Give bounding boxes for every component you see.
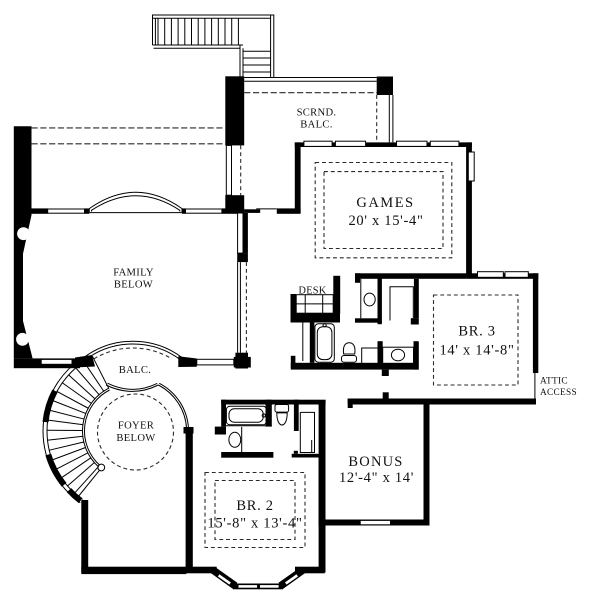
svg-text:GAMES: GAMES: [356, 195, 414, 211]
svg-text:ATTIC: ATTIC: [540, 376, 568, 386]
svg-text:BR. 2: BR. 2: [236, 498, 273, 514]
svg-text:20' x 15'-4": 20' x 15'-4": [348, 213, 423, 229]
svg-text:ACCESS: ACCESS: [540, 388, 577, 398]
svg-text:BR. 3: BR. 3: [458, 323, 495, 339]
svg-text:FOYER: FOYER: [118, 421, 155, 432]
svg-text:BALC.: BALC.: [119, 365, 151, 376]
svg-text:BELOW: BELOW: [116, 433, 155, 444]
svg-text:14' x 14'-8": 14' x 14'-8": [439, 342, 514, 358]
svg-text:FAMILY: FAMILY: [113, 268, 154, 279]
svg-text:12'-4" x 14': 12'-4" x 14': [339, 470, 414, 486]
svg-text:BALC.: BALC.: [300, 120, 332, 131]
svg-text:BELOW: BELOW: [114, 280, 153, 291]
svg-text:15'-8" x 13'-4": 15'-8" x 13'-4": [207, 515, 302, 531]
svg-text:BONUS: BONUS: [348, 454, 403, 470]
svg-text:SCRND.: SCRND.: [297, 108, 337, 119]
